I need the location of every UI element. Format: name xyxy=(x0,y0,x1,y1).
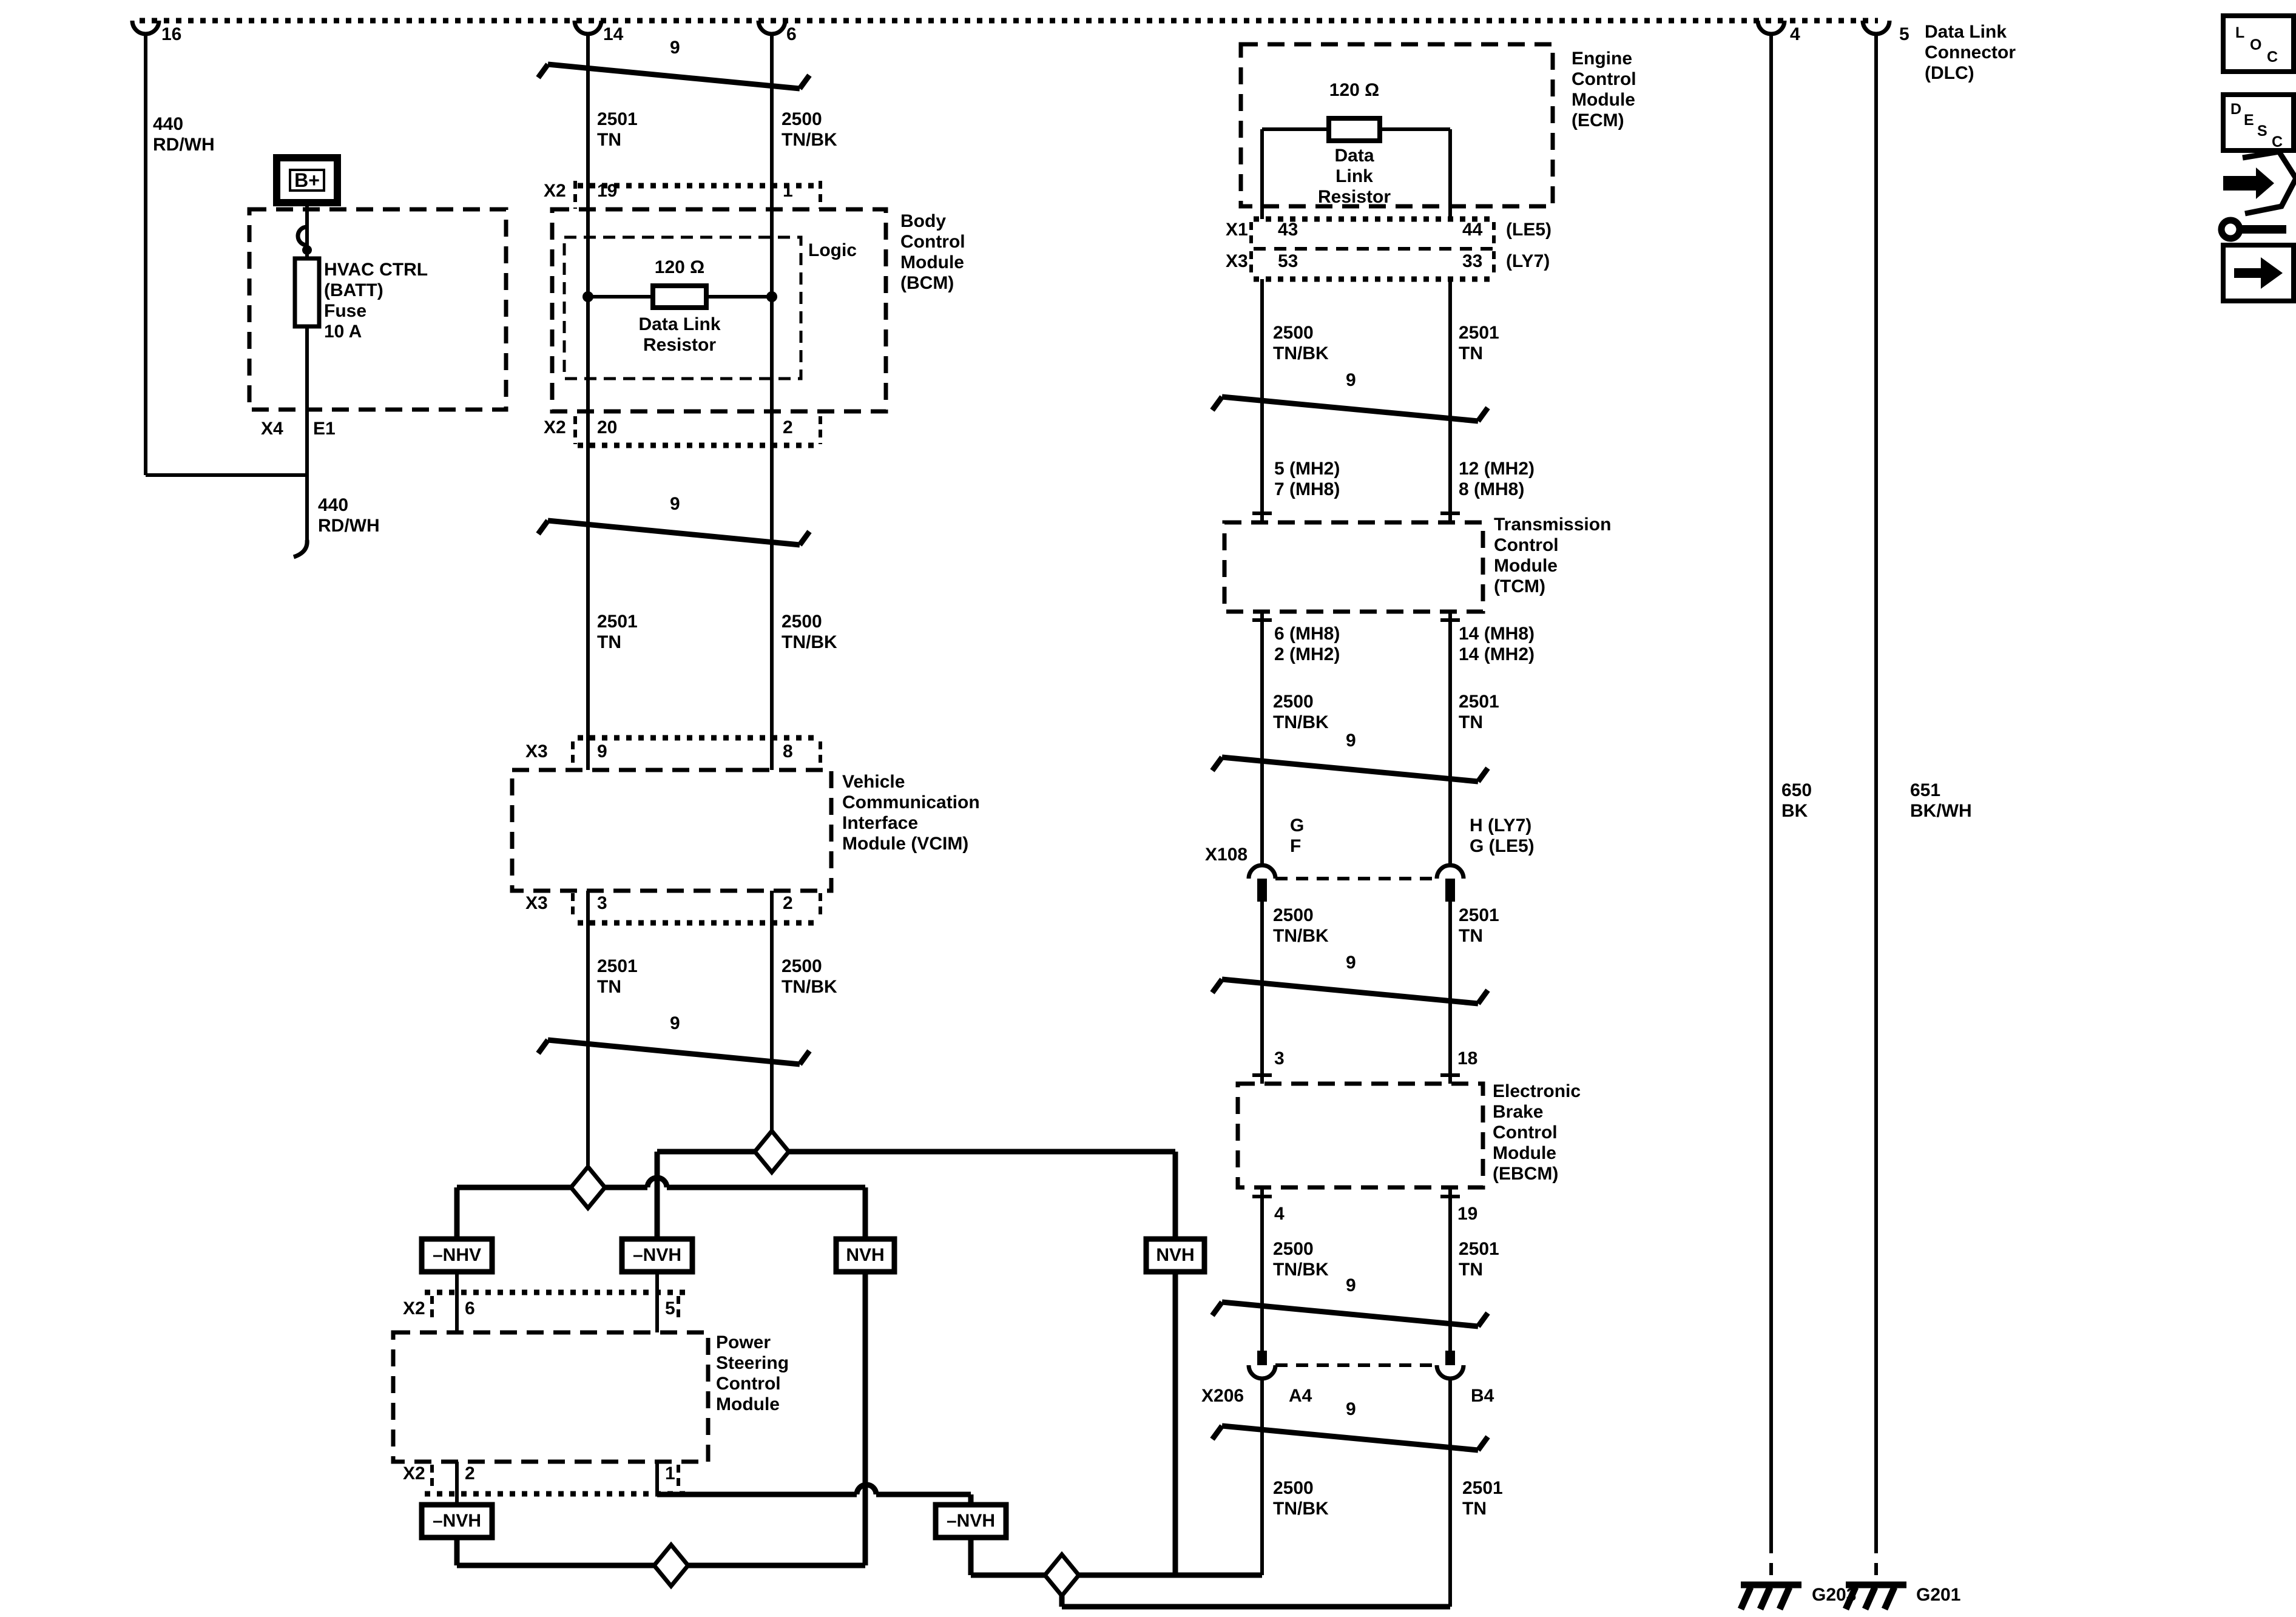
bplus-label: B+ xyxy=(294,170,320,191)
wire-2501-label: 2501 TN xyxy=(597,956,638,998)
wire-650-label: 650 BK xyxy=(1781,780,1812,822)
bcm-resistor-symbol xyxy=(653,286,706,308)
tcm-pins-lower-right: 14 (MH8) 14 (MH2) xyxy=(1459,624,1535,665)
wire-2500-label: 2500 TN/BK xyxy=(782,109,837,150)
pscm-x2-top: X2 xyxy=(403,1298,425,1319)
tcm-pins-lower-left: 6 (MH8) 2 (MH2) xyxy=(1274,624,1340,665)
x206-label: X206 xyxy=(1201,1386,1244,1406)
wire-2501-label: 2501 TN xyxy=(1459,1239,1499,1280)
dlc-pin-4: 4 xyxy=(1790,24,1800,45)
pscm-name: Power Steering Control Module xyxy=(716,1332,789,1415)
twist-count-label: 9 xyxy=(1346,370,1356,391)
dlc-pin-16: 16 xyxy=(161,24,181,45)
wire-2501-label: 2501 TN xyxy=(1462,1478,1503,1519)
pscm-pin-6: 6 xyxy=(465,1298,475,1319)
ground-symbol-g203 xyxy=(1741,1585,1801,1609)
bcm-logic-label: Logic xyxy=(808,240,857,261)
vcim-outline xyxy=(512,770,831,891)
x108-right-pins: H (LY7) G (LE5) xyxy=(1470,815,1535,857)
wire-2500-label: 2500 TN/BK xyxy=(1273,692,1329,733)
termination-label-nvh-minus: –NVH xyxy=(433,1511,481,1531)
wire-2501-label: 2501 TN xyxy=(597,109,638,150)
dlc-pin-5: 5 xyxy=(1899,24,1909,45)
bcm-pin-2: 2 xyxy=(783,417,793,438)
tcm-module xyxy=(1224,522,1483,865)
bcm-name: Body Control Module (BCM) xyxy=(900,211,965,294)
vcim-x3-top: X3 xyxy=(525,741,548,762)
pscm-outline xyxy=(393,1332,708,1462)
vcim-pin-3: 3 xyxy=(597,893,607,914)
diagnostic-pointer-icon[interactable] xyxy=(2221,152,2296,238)
desc-icon-letter: D xyxy=(2230,102,2241,117)
tcm-name: Transmission Control Module (TCM) xyxy=(1494,515,1611,597)
vcim-name: Vehicle Communication Interface Module (… xyxy=(842,772,980,854)
x108-left-pins: G F xyxy=(1290,815,1304,857)
tcm-pins-upper-right: 12 (MH2) 8 (MH8) xyxy=(1459,459,1535,500)
vcim-pin-2: 2 xyxy=(783,893,793,914)
ecm-resistor-name: Data Link Resistor xyxy=(1318,146,1391,208)
dlc-pin-14: 14 xyxy=(603,24,623,45)
pscm-pin-5: 5 xyxy=(665,1298,675,1319)
ecm-pin-53: 53 xyxy=(1278,251,1298,272)
termination-label-nhv: –NHV xyxy=(433,1245,481,1266)
twist-count-label: 9 xyxy=(1346,953,1356,973)
ecm-pin-43: 43 xyxy=(1278,220,1298,240)
ecm-name: Engine Control Module (ECM) xyxy=(1572,49,1636,131)
bcm-x2-bottom: X2 xyxy=(544,417,566,438)
ecm-le5: (LE5) xyxy=(1506,220,1551,240)
wire-2500-label: 2500 TN/BK xyxy=(782,612,837,653)
splice-diamond xyxy=(654,1545,688,1586)
loc-icon-letter: O xyxy=(2250,38,2261,53)
pscm-pin-1: 1 xyxy=(665,1463,675,1484)
wire-2500-label: 2500 TN/BK xyxy=(1273,323,1329,364)
x108-label: X108 xyxy=(1205,845,1248,865)
desc-icon-letter: C xyxy=(2272,135,2283,150)
wire-2501-label: 2501 TN xyxy=(597,612,638,653)
wire-2500-label: 2500 TN/BK xyxy=(1273,1239,1329,1280)
ebcm-outline xyxy=(1238,1084,1483,1187)
wire-440-label: 440 RD/WH xyxy=(318,495,380,536)
splices-and-branches xyxy=(422,1131,1204,1272)
bottom-bus xyxy=(457,1272,1450,1607)
ground-wires xyxy=(1741,34,1906,1609)
ebcm-pin-4: 4 xyxy=(1274,1204,1285,1224)
ecm-pin-44: 44 xyxy=(1462,220,1482,240)
tcm-outline xyxy=(1224,522,1483,612)
wire-2500-label: 2500 TN/BK xyxy=(1273,1478,1329,1519)
bcm-resistor-name: Data Link Resistor xyxy=(638,314,720,356)
bcm-pin-20: 20 xyxy=(597,417,617,438)
bcm-module xyxy=(552,181,886,445)
wire-2500-label: 2500 TN/BK xyxy=(782,956,837,998)
ground-g201-label: G201 xyxy=(1916,1585,1960,1605)
forward-arrow-icon[interactable] xyxy=(2223,245,2294,301)
splice-diamond xyxy=(755,1131,789,1172)
termination-label-nvh: NVH xyxy=(1156,1245,1194,1266)
wire-2501-label: 2501 TN xyxy=(1459,323,1499,364)
vcim-pin-8: 8 xyxy=(783,741,793,762)
wire-440-label: 440 RD/WH xyxy=(153,114,215,155)
fuse-symbol xyxy=(295,258,319,326)
dlc-pin-6: 6 xyxy=(786,24,797,45)
wire-2501-label: 2501 TN xyxy=(1459,692,1499,733)
fuse-label: HVAC CTRL (BATT) Fuse 10 A xyxy=(324,260,428,342)
twist-count-label: 9 xyxy=(670,1013,680,1034)
termination-label-nvh-minus: –NVH xyxy=(947,1511,995,1531)
legend-icons xyxy=(2221,16,2296,301)
wire-2500-label: 2500 TN/BK xyxy=(1273,905,1329,947)
ecm-pin-33: 33 xyxy=(1462,251,1482,272)
termination-label-nvh: NVH xyxy=(846,1245,884,1266)
x4-label: X4 xyxy=(261,419,283,439)
twist-count-label: 9 xyxy=(1346,1399,1356,1420)
ecm-resistor-ohms: 120 Ω xyxy=(1329,80,1379,101)
pscm-pin-2: 2 xyxy=(465,1463,475,1484)
e1-label: E1 xyxy=(313,419,336,439)
ground-g203-label: G203 xyxy=(1812,1585,1856,1605)
tcm-pins-upper-left: 5 (MH2) 7 (MH8) xyxy=(1274,459,1340,500)
pscm-module xyxy=(393,1272,1006,1538)
splice-diamond xyxy=(1045,1555,1079,1596)
vcim-pin-9: 9 xyxy=(597,741,607,762)
desc-icon-letter: S xyxy=(2257,124,2267,139)
ecm-resistor-symbol xyxy=(1329,118,1380,141)
x206-pin-b4: B4 xyxy=(1471,1386,1494,1406)
ebcm-pin-3: 3 xyxy=(1274,1048,1285,1069)
ecm-module xyxy=(1241,44,1553,279)
vcim-x3-bottom: X3 xyxy=(525,893,548,914)
bcm-x2-top: X2 xyxy=(544,181,566,201)
ecm-outline xyxy=(1241,44,1553,206)
bcm-pin-1: 1 xyxy=(783,181,793,201)
twist-count-label: 9 xyxy=(670,38,680,58)
ebcm-pin-19: 19 xyxy=(1457,1204,1477,1224)
wire-651-label: 651 BK/WH xyxy=(1910,780,1972,822)
dlc-name: Data Link Connector (DLC) xyxy=(1925,22,2016,84)
pscm-x2-bottom: X2 xyxy=(403,1463,425,1484)
twist-count-label: 9 xyxy=(1346,731,1356,751)
ebcm-name: Electronic Brake Control Module (EBCM) xyxy=(1493,1081,1581,1184)
ecm-x3: X3 xyxy=(1226,251,1248,272)
twist-count-label: 9 xyxy=(670,494,680,515)
junction-dot xyxy=(302,245,312,255)
wiring-diagram: 16 14 6 4 5 Data Link Connector (DLC) 44… xyxy=(0,0,2296,1617)
wire-end-hook xyxy=(294,540,307,557)
x206-pin-a4: A4 xyxy=(1289,1386,1312,1406)
bcm-pin-19: 19 xyxy=(597,181,617,201)
wire-2501-label: 2501 TN xyxy=(1459,905,1499,947)
ecm-x1: X1 xyxy=(1226,220,1248,240)
bcm-outline xyxy=(552,209,886,411)
loc-icon-letter: C xyxy=(2267,50,2278,65)
bcm-resistor-ohms: 120 Ω xyxy=(655,257,704,278)
loc-icon-letter: L xyxy=(2235,25,2244,41)
desc-icon-letter: E xyxy=(2244,113,2254,128)
ebcm-pin-18: 18 xyxy=(1457,1048,1477,1069)
twist-count-label: 9 xyxy=(1346,1275,1356,1296)
termination-label-nvh-minus: –NVH xyxy=(633,1245,681,1266)
splice-diamond xyxy=(571,1167,605,1208)
ecm-ly7: (LY7) xyxy=(1506,251,1550,272)
dlc-connector-line xyxy=(132,21,1889,34)
